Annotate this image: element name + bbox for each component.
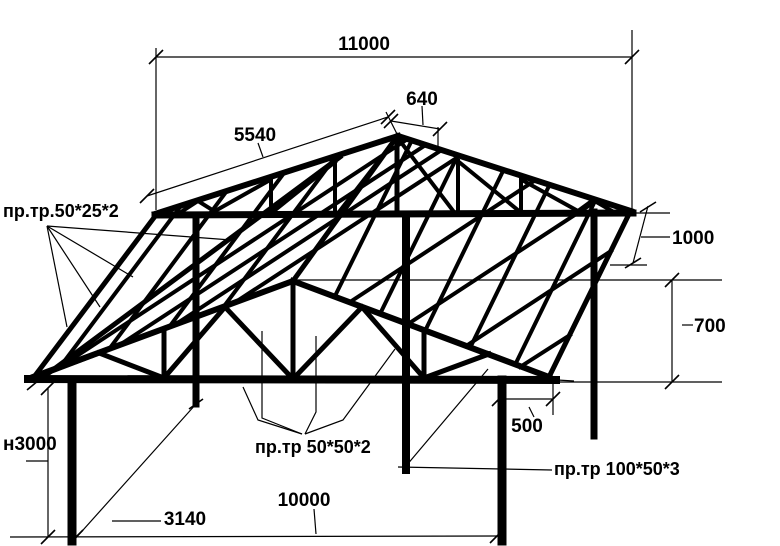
dim-text-640: 640 (406, 89, 438, 110)
dim-text-1000: 1000 (672, 228, 714, 249)
dim-text-11000: 11000 (338, 34, 390, 55)
dim-text-700: 700 (694, 316, 726, 337)
dim-text-500: 500 (511, 416, 543, 437)
dim-line-640 (391, 121, 440, 129)
purlins-steep-right (335, 142, 595, 365)
dim-text-3140: 3140 (164, 509, 206, 530)
label-column-profile: пр.тр 100*50*3 (554, 459, 680, 479)
extension-lines (156, 30, 722, 415)
label-truss-profile: пр.тр 50*50*2 (255, 437, 371, 457)
label-purlin-profile: пр.тр.50*25*2 (3, 201, 119, 221)
dim-text-5540: 5540 (234, 125, 276, 146)
right-eave-edge (549, 212, 630, 377)
drawing-canvas: 11000 5540 640 1000 700 500 н3000 3140 1… (0, 0, 780, 546)
dim-text-3000: н3000 (3, 434, 57, 455)
dim-text-10000: 10000 (278, 490, 331, 511)
roof-frame-drawing: 11000 5540 640 1000 700 500 н3000 3140 1… (0, 0, 780, 546)
upper-truss-bottom-chord (155, 213, 633, 215)
dim-line-10000 (10, 536, 497, 537)
